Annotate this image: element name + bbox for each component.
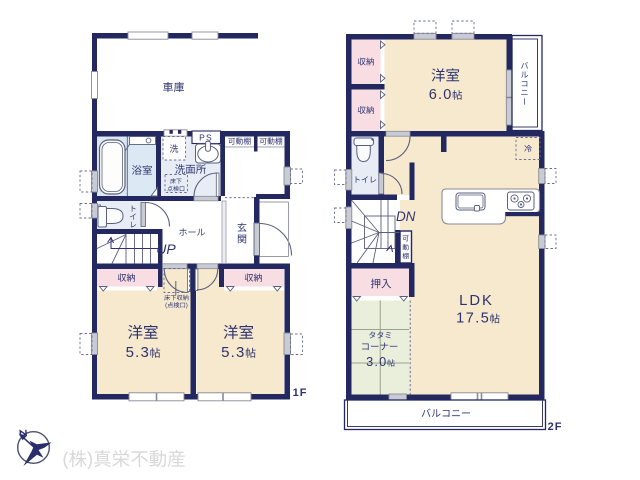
svg-text:DN: DN: [396, 209, 416, 224]
svg-text:): ): [186, 302, 188, 309]
svg-text:3.0: 3.0: [366, 354, 387, 369]
svg-text:17.5: 17.5: [456, 311, 490, 327]
svg-text:PS: PS: [199, 133, 213, 143]
svg-text:UP: UP: [156, 241, 176, 257]
svg-text:6.0: 6.0: [429, 87, 453, 103]
svg-text:): ): [87, 448, 93, 469]
svg-text:(: (: [62, 448, 69, 469]
svg-text:5.3: 5.3: [126, 344, 150, 361]
svg-text:1F: 1F: [293, 387, 308, 399]
svg-text:LDK: LDK: [459, 293, 494, 309]
svg-text:2F: 2F: [548, 421, 563, 433]
svg-text:5.3: 5.3: [221, 344, 245, 361]
